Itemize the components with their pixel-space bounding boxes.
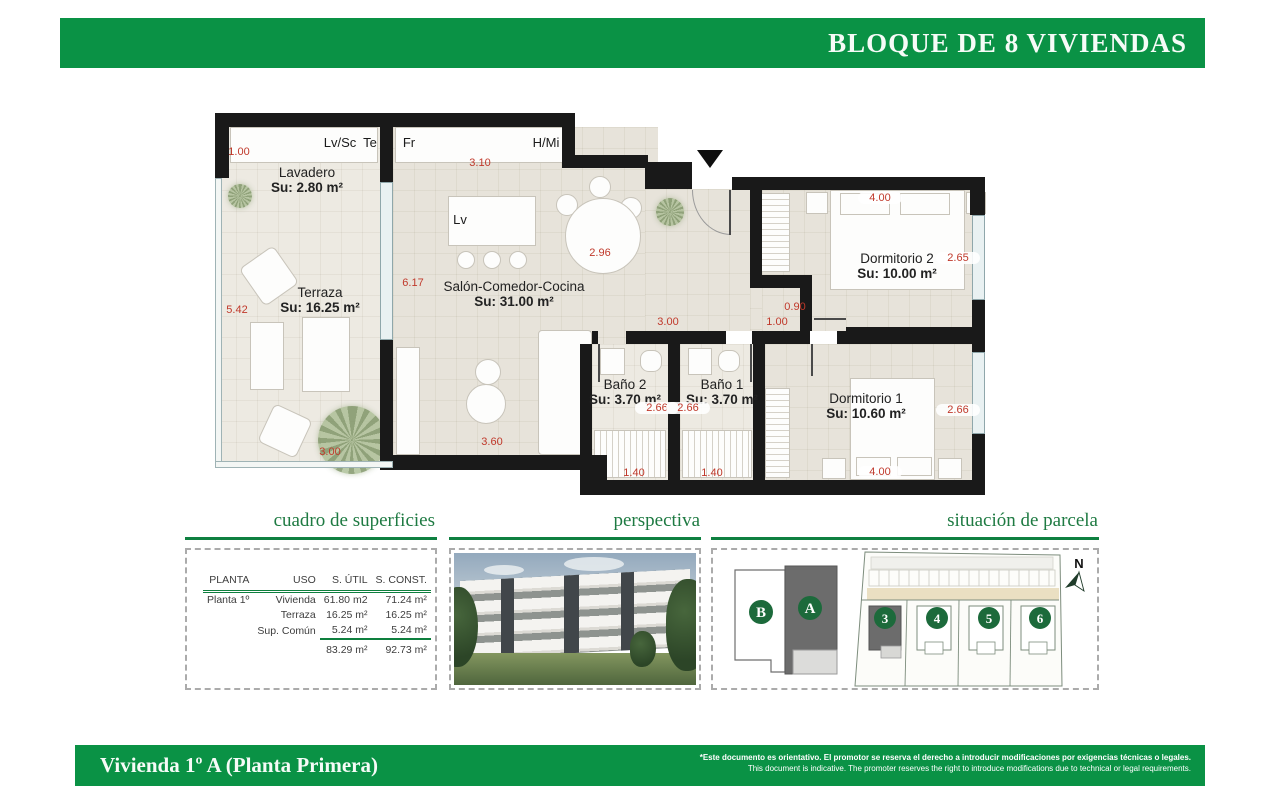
facade-pier	[564, 575, 579, 654]
dimension-label: 0.90	[773, 301, 817, 313]
footer-bar: Vivienda 1º A (Planta Primera) *Este doc…	[75, 745, 1205, 786]
furniture-nightstand	[822, 458, 846, 479]
room-area: Su: 31.00 m²	[434, 294, 594, 309]
cell-planta: Planta 1º	[203, 591, 253, 608]
site-plan: B A	[713, 550, 1097, 688]
cell-util: 5.24 m²	[320, 623, 372, 639]
plant-icon	[656, 198, 684, 226]
cloud	[484, 565, 524, 575]
plot6-house-notch	[1029, 642, 1047, 654]
room-label-terraza: Terraza Su: 16.25 m²	[245, 285, 395, 315]
plot3-label: 3	[882, 611, 889, 626]
wall-segment	[846, 327, 985, 344]
dimension-label: 1.40	[690, 467, 734, 479]
perspective-photo	[454, 553, 696, 685]
terrace-railing	[215, 178, 222, 468]
block-b-label: B	[756, 605, 766, 621]
perspective-panel	[449, 548, 701, 690]
footer-title: Vivienda 1º A (Planta Primera)	[100, 745, 378, 786]
furniture-washbasin	[600, 348, 625, 375]
dimension-label: 2.66	[936, 404, 980, 416]
floor-plan: Lv/Sc Te Fr H/Mi Lv Lavadero Su: 2.80 m²…	[215, 113, 990, 503]
dimension-label: 3.00	[308, 446, 352, 458]
north-arrow-icon	[1075, 572, 1084, 591]
door-leaf-dorm1	[811, 344, 813, 376]
room-label-dormitorio1: Dormitorio 1 Su: 10.60 m²	[796, 391, 936, 421]
dimension-label: 4.00	[858, 466, 902, 478]
wall-segment	[972, 434, 985, 495]
dimension-label: 2.65	[936, 252, 980, 264]
wall-segment	[837, 331, 846, 344]
appliance-label: Lv	[445, 212, 475, 227]
total-construida: 92.73 m²	[372, 639, 431, 658]
furniture-armchair	[475, 359, 501, 385]
plot6-label: 6	[1037, 611, 1044, 626]
appliance-label: Te	[355, 135, 385, 150]
cell-construida: 71.24 m²	[372, 591, 431, 608]
divider	[449, 537, 701, 540]
plot4-house-notch	[925, 642, 943, 654]
disclaimer-en: This document is indicative. The promote…	[700, 763, 1191, 774]
plot5-label: 5	[986, 611, 993, 626]
north-label: N	[1074, 556, 1083, 571]
total-util: 83.29 m²	[320, 639, 372, 658]
table-row: Sup. Común 5.24 m² 5.24 m²	[203, 623, 431, 639]
wall-segment	[592, 331, 598, 344]
plot3-terrace	[881, 646, 901, 658]
dimension-label: 1.40	[612, 467, 656, 479]
room-area: Su: 16.25 m²	[245, 300, 395, 315]
tree	[666, 579, 696, 671]
table-row: Terraza 16.25 m² 16.25 m²	[203, 608, 431, 623]
furniture-wardrobe-dorm1	[765, 388, 790, 478]
furniture-nightstand	[806, 192, 828, 214]
cell-uso: Terraza	[253, 608, 319, 623]
block-a-label: A	[805, 601, 816, 617]
wall-segment	[580, 480, 985, 495]
dimension-label: 2.96	[578, 247, 622, 259]
furniture-washbasin	[688, 348, 712, 375]
parking-row	[869, 570, 1055, 586]
site-title: situación de parcela	[711, 510, 1098, 532]
table-row: Planta 1º Vivienda 61.80 m2 71.24 m²	[203, 591, 431, 608]
parking-row	[871, 557, 1053, 569]
wall-segment	[970, 190, 985, 215]
plot5-house-notch	[977, 642, 995, 654]
room-name: Terraza	[245, 285, 395, 300]
room-label-lavadero: Lavadero Su: 2.80 m²	[232, 165, 382, 195]
furniture-wardrobe-dorm2	[758, 193, 790, 272]
door-leaf-dorm2	[814, 318, 846, 320]
disclaimer: *Este documento es orientativo. El promo…	[700, 752, 1191, 774]
column-header: USO	[253, 572, 319, 591]
column-header: S. ÚTIL	[320, 572, 372, 591]
dimension-label: 2.66	[666, 402, 710, 414]
dimension-label: 1.00	[755, 316, 799, 328]
wall-segment	[972, 344, 985, 352]
terrace-railing	[215, 461, 393, 468]
cell-util: 61.80 m2	[320, 591, 372, 608]
furniture-terrace-table	[302, 317, 350, 392]
room-name: Lavadero	[232, 165, 382, 180]
room-name: Salón-Comedor-Cocina	[434, 279, 594, 294]
surfaces-panel: PLANTA USO S. ÚTIL S. CONST. Planta 1º V…	[185, 548, 437, 690]
column-header: PLANTA	[203, 572, 253, 591]
wall-segment	[626, 331, 726, 344]
dimension-label: 6.17	[391, 277, 435, 289]
room-area: Su: 2.80 m²	[232, 180, 382, 195]
room-name: Dormitorio 1	[796, 391, 936, 406]
cell-planta	[203, 623, 253, 639]
furniture-stool	[483, 251, 501, 269]
wall-segment	[645, 162, 692, 189]
dimension-label: 3.60	[470, 436, 514, 448]
furniture-dining-chair	[589, 176, 611, 198]
divider	[185, 537, 437, 540]
divider	[711, 537, 1099, 540]
window-terraza-slider	[380, 182, 393, 340]
furniture-pillow	[897, 457, 932, 476]
furniture-pouf	[466, 384, 506, 424]
cell-construida: 16.25 m²	[372, 608, 431, 623]
surfaces-title: cuadro de superficies	[185, 510, 435, 532]
road-strip	[867, 588, 1059, 600]
wall-segment	[753, 344, 765, 482]
disclaimer-es: *Este documento es orientativo. El promo…	[700, 752, 1191, 763]
block-a-terrace	[793, 650, 837, 674]
wall-segment	[732, 177, 985, 190]
furniture-nightstand	[938, 458, 962, 479]
dimension-label: 1.00	[217, 146, 261, 158]
room-area: Su: 10.00 m²	[827, 266, 967, 281]
appliance-label: Fr	[394, 135, 424, 150]
furniture-toilet	[718, 350, 740, 372]
dimension-label: 4.00	[858, 192, 902, 204]
wall-segment	[752, 331, 810, 344]
room-name: Baño 1	[684, 377, 760, 392]
appliance-label: H/Mi	[521, 135, 571, 150]
wall-segment	[215, 113, 575, 127]
surfaces-table: PLANTA USO S. ÚTIL S. CONST. Planta 1º V…	[203, 572, 431, 657]
window-dorm1	[972, 352, 985, 434]
entrance-arrow-icon	[697, 150, 723, 168]
column-header: S. CONST.	[372, 572, 431, 591]
wall-segment	[580, 344, 592, 482]
furniture-stool	[457, 251, 475, 269]
table-total-row: 83.29 m² 92.73 m²	[203, 639, 431, 658]
grass	[454, 653, 696, 685]
header-bar: BLOQUE DE 8 VIVIENDAS	[60, 18, 1205, 68]
plot4-label: 4	[934, 611, 941, 626]
cell-uso: Sup. Común	[253, 623, 319, 639]
room-label-salon: Salón-Comedor-Cocina Su: 31.00 m²	[434, 279, 594, 309]
wall-segment	[750, 190, 762, 282]
furniture-stool	[509, 251, 527, 269]
door-leaf-entrance	[729, 190, 731, 235]
header-title: BLOQUE DE 8 VIVIENDAS	[828, 18, 1187, 68]
cell-util: 16.25 m²	[320, 608, 372, 623]
furniture-dining-table	[565, 198, 641, 274]
cell-construida: 5.24 m²	[372, 623, 431, 639]
furniture-pillow	[900, 193, 950, 215]
wall-segment	[380, 455, 602, 470]
facade-pier	[501, 578, 514, 657]
furniture-terrace-sunbed	[250, 322, 284, 390]
perspective-title: perspectiva	[449, 510, 700, 532]
cloud	[564, 557, 624, 571]
dimension-label: 3.00	[646, 316, 690, 328]
furniture-tv-cabinet	[396, 347, 420, 455]
room-area: Su: 10.60 m²	[796, 406, 936, 421]
site-panel: B A	[711, 548, 1099, 690]
wall-segment	[562, 155, 648, 168]
furniture-toilet	[640, 350, 662, 372]
wall-segment	[380, 340, 393, 470]
dimension-label: 5.42	[215, 304, 259, 316]
room-name: Baño 2	[587, 377, 663, 392]
dimension-label: 3.10	[458, 157, 502, 169]
cell-planta	[203, 608, 253, 623]
cell-uso: Vivienda	[253, 591, 319, 608]
